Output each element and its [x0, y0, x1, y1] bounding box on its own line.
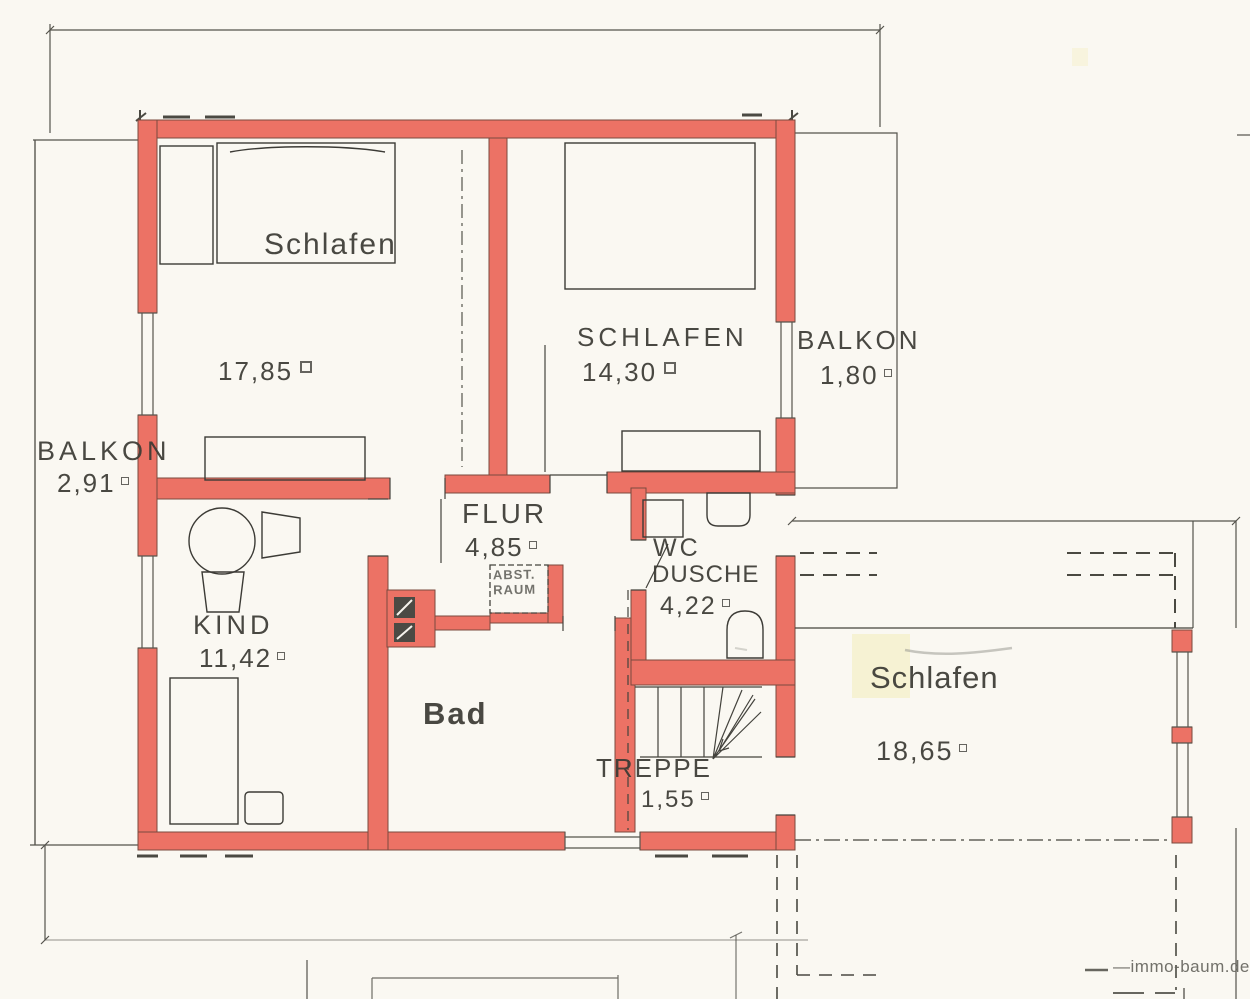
wall-bad-top	[426, 616, 490, 630]
room-name: Schlafen	[870, 660, 999, 695]
bed-kind	[170, 678, 238, 824]
area-value: 18,65	[876, 736, 954, 766]
room-area-wc: 4,22	[660, 592, 730, 621]
room-area-flur: 4,85	[465, 532, 537, 563]
wall-wc-left-upper	[631, 488, 646, 540]
furniture-schlafen-ur	[565, 143, 760, 471]
washbasin	[643, 500, 683, 537]
wall-bottom-left	[138, 832, 565, 850]
door-wc	[631, 540, 646, 590]
area-value: 14,30	[582, 357, 657, 387]
area-value: 17,85	[218, 356, 293, 386]
roof-dashed-lines	[800, 553, 1180, 628]
chair-right	[262, 512, 300, 558]
room-label-treppe: TREPPE	[596, 753, 712, 784]
wall-right-upper	[776, 120, 795, 322]
door-kind	[368, 499, 388, 556]
area-value: 11,42	[199, 643, 272, 673]
balcony-door-right	[776, 322, 795, 418]
room-area-treppe: 1,55	[641, 786, 709, 814]
pencil-smudge	[905, 648, 1012, 654]
wall-closet-right	[548, 565, 563, 623]
lower-dashed-outlines	[777, 855, 1176, 999]
room-name: TREPPE	[596, 753, 712, 783]
room-area-balkon-left: 2,91	[57, 468, 129, 499]
room-name: Schlafen	[264, 228, 397, 261]
bed-headboard	[230, 147, 385, 152]
area-value: 4,85	[465, 532, 524, 562]
room-area-schlafen-ul: 17,85	[218, 356, 312, 387]
room-name: Bad	[423, 696, 488, 731]
abst-line1: ABST.	[493, 567, 536, 583]
room-label-schlafen-ur: SCHLAFEN	[577, 322, 748, 353]
wall-left-upper	[138, 120, 157, 313]
wall-bottom-right	[640, 832, 795, 850]
door-schlafen-ur	[550, 472, 607, 493]
sqm-symbol	[701, 792, 709, 800]
room-name: FLUR	[462, 498, 547, 529]
wall-closet-bottom	[490, 613, 548, 623]
wall-east-3	[1172, 817, 1192, 843]
sqm-symbol	[722, 599, 730, 607]
room-area-schlafen-ur: 14,30	[582, 357, 676, 388]
room-label-flur: FLUR	[462, 498, 547, 530]
room-label-schlafen-east: Schlafen	[870, 660, 999, 696]
balcony-door-left	[138, 556, 157, 648]
watermark: —immo-baum.de	[1113, 957, 1250, 977]
wall-right-lower	[776, 815, 795, 850]
door-east-room	[776, 495, 795, 556]
chair-bottom	[202, 572, 244, 612]
chimney-shaft	[387, 590, 435, 647]
window-east-upper	[1172, 652, 1192, 727]
sqm-symbol	[277, 652, 285, 660]
area-value: 2,91	[57, 468, 116, 498]
sqm-symbol	[529, 541, 537, 549]
sqm-symbol	[959, 744, 967, 752]
room-name: BALKON	[37, 436, 171, 466]
sqm-symbol	[121, 477, 129, 485]
room-name: WC	[653, 534, 701, 562]
wall-wc-left-lower	[631, 590, 646, 660]
wall-kind-bad	[368, 556, 388, 850]
room-name: KIND	[193, 610, 274, 640]
wall-wc-bottom	[631, 660, 795, 685]
furniture-schlafen-ul	[160, 143, 395, 480]
wardrobe	[160, 146, 213, 264]
sideboard	[205, 437, 365, 480]
room-area-balkon-right: 1,80	[820, 360, 892, 391]
sqm-symbol	[300, 361, 312, 373]
sqm-symbol	[884, 369, 892, 377]
window-east-lower	[1172, 743, 1192, 817]
sideboard	[622, 431, 760, 471]
watermark-dash: —	[1113, 957, 1131, 976]
wall-flur-top-left	[445, 475, 550, 493]
wall-left-lower	[138, 648, 157, 850]
wall-bedroom-divider	[489, 138, 507, 478]
area-value: 1,80	[820, 360, 879, 390]
window-bad	[565, 832, 640, 850]
room-area-schlafen-east: 18,65	[876, 736, 967, 767]
wall-kind-top	[157, 478, 390, 499]
room-label-dusche: DUSCHE	[652, 561, 759, 589]
sqm-symbol	[664, 362, 676, 374]
room-name: DUSCHE	[652, 561, 759, 588]
room-area-kind: 11,42	[199, 643, 285, 674]
stair-treads	[658, 687, 704, 757]
round-table	[189, 508, 255, 574]
door-bad	[563, 616, 615, 631]
door-treppe-east	[776, 757, 795, 815]
bed	[565, 143, 755, 289]
abst-line2: RAUM	[493, 582, 536, 598]
door-schlafen-ul	[390, 478, 445, 499]
balcony-right-outline	[795, 133, 897, 488]
wall-east-2	[1172, 727, 1192, 743]
wall-right-mid2	[776, 556, 795, 757]
shower	[707, 493, 750, 526]
wall-top	[138, 120, 795, 138]
floorplan-scan: Schlafen 17,85 SCHLAFEN 14,30 BALKON 1,8…	[0, 0, 1250, 999]
floorplan-drawing	[0, 0, 1250, 999]
watermark-text: immo-baum.de	[1131, 957, 1250, 976]
window-schlafen-left	[138, 313, 157, 415]
room-label-bad: Bad	[423, 696, 488, 732]
wall-east-1	[1172, 630, 1192, 652]
room-label-abstellraum: ABST. RAUM	[493, 567, 537, 598]
room-name: BALKON	[797, 325, 921, 355]
room-label-balkon-right: BALKON	[797, 325, 921, 356]
room-label-wc: WC	[653, 534, 701, 563]
room-label-schlafen-ul: Schlafen	[264, 228, 397, 262]
area-value: 4,22	[660, 592, 717, 620]
toilet	[727, 611, 763, 658]
room-name: SCHLAFEN	[577, 322, 748, 352]
stool	[245, 792, 283, 824]
area-value: 1,55	[641, 786, 696, 813]
room-label-balkon-left: BALKON	[37, 436, 171, 467]
room-label-kind: KIND	[193, 610, 274, 641]
